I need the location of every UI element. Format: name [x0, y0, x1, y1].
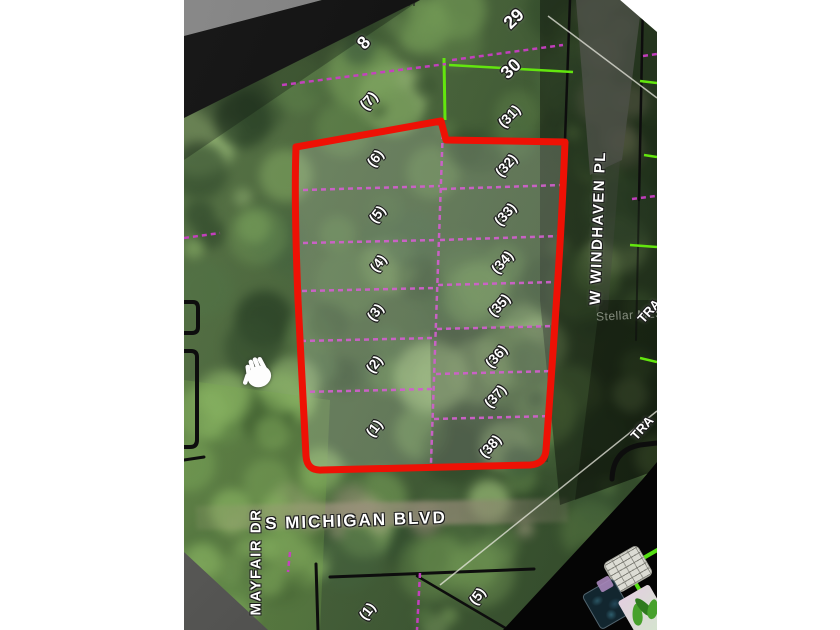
listing-photo-page: Stellar MLS S MICHIGAN BLVD MAYFAIR DR W…	[0, 0, 840, 630]
aerial-plat-photo[interactable]: Stellar MLS S MICHIGAN BLVD MAYFAIR DR W…	[0, 0, 840, 630]
tiny-map-text	[378, 0, 418, 6]
plat-linework	[0, 0, 840, 630]
hand-cursor-icon	[238, 350, 276, 390]
parcel-outline	[295, 121, 565, 470]
